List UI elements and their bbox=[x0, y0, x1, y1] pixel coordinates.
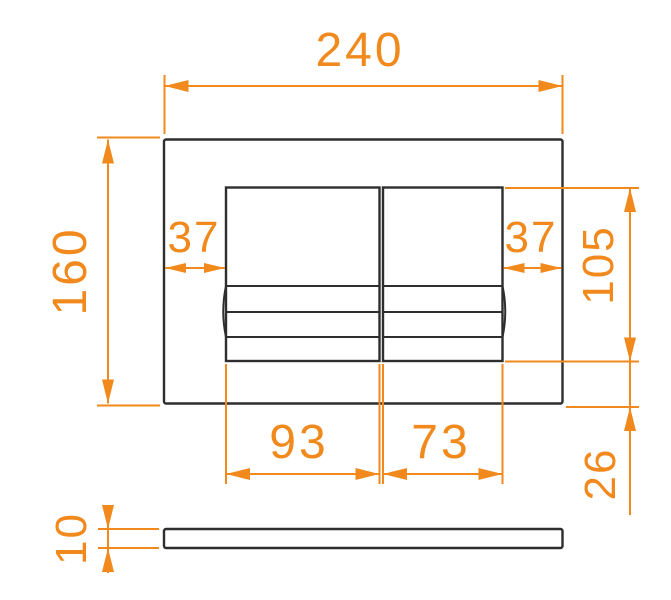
dim-label-large-button-width: 93 bbox=[269, 416, 328, 469]
dim-label-plate-height: 160 bbox=[44, 226, 97, 315]
flush-plate-technical-drawing: 240 160 37 37 bbox=[0, 0, 671, 600]
dim-plate-width: 240 bbox=[165, 24, 563, 134]
arrowhead-top bbox=[102, 140, 114, 164]
dim-plate-height: 160 bbox=[44, 138, 160, 406]
dim-label-buttons-height: 105 bbox=[574, 225, 623, 304]
large-button-outline bbox=[226, 188, 380, 362]
arrowhead-top bbox=[624, 188, 636, 212]
arrowhead-down bbox=[102, 505, 114, 529]
side-view bbox=[164, 529, 563, 548]
arrowhead-bottom bbox=[102, 380, 114, 404]
dim-label-inset-right: 37 bbox=[505, 213, 558, 262]
dim-label-bottom-offset: 26 bbox=[576, 448, 625, 501]
dim-label-inset-left: 37 bbox=[168, 213, 221, 262]
dim-label-plate-width: 240 bbox=[315, 24, 404, 77]
dim-label-plate-thickness: 10 bbox=[47, 512, 96, 565]
arrowhead-right-outer bbox=[479, 468, 503, 480]
drawing-canvas: 240 160 37 37 bbox=[0, 0, 671, 600]
arrowhead-right-inner bbox=[383, 468, 407, 480]
front-view bbox=[164, 140, 563, 404]
dim-buttons-bottom-offset: 26 bbox=[566, 407, 639, 500]
arrowhead-left-outer bbox=[226, 468, 250, 480]
small-button-outline bbox=[383, 188, 503, 362]
dim-label-small-button-width: 73 bbox=[411, 416, 470, 469]
arrowhead-bottom bbox=[624, 338, 636, 362]
extension-lines bbox=[97, 138, 160, 406]
dim-plate-thickness: 10 bbox=[47, 505, 159, 573]
arrowhead-right bbox=[539, 80, 563, 92]
extension-lines bbox=[165, 75, 563, 134]
arrowhead-left bbox=[165, 80, 189, 92]
plate-side-profile bbox=[164, 529, 563, 548]
arrowhead-left-inner bbox=[356, 468, 380, 480]
arrowhead-up bbox=[102, 548, 114, 572]
arrowhead-up bbox=[624, 407, 636, 431]
